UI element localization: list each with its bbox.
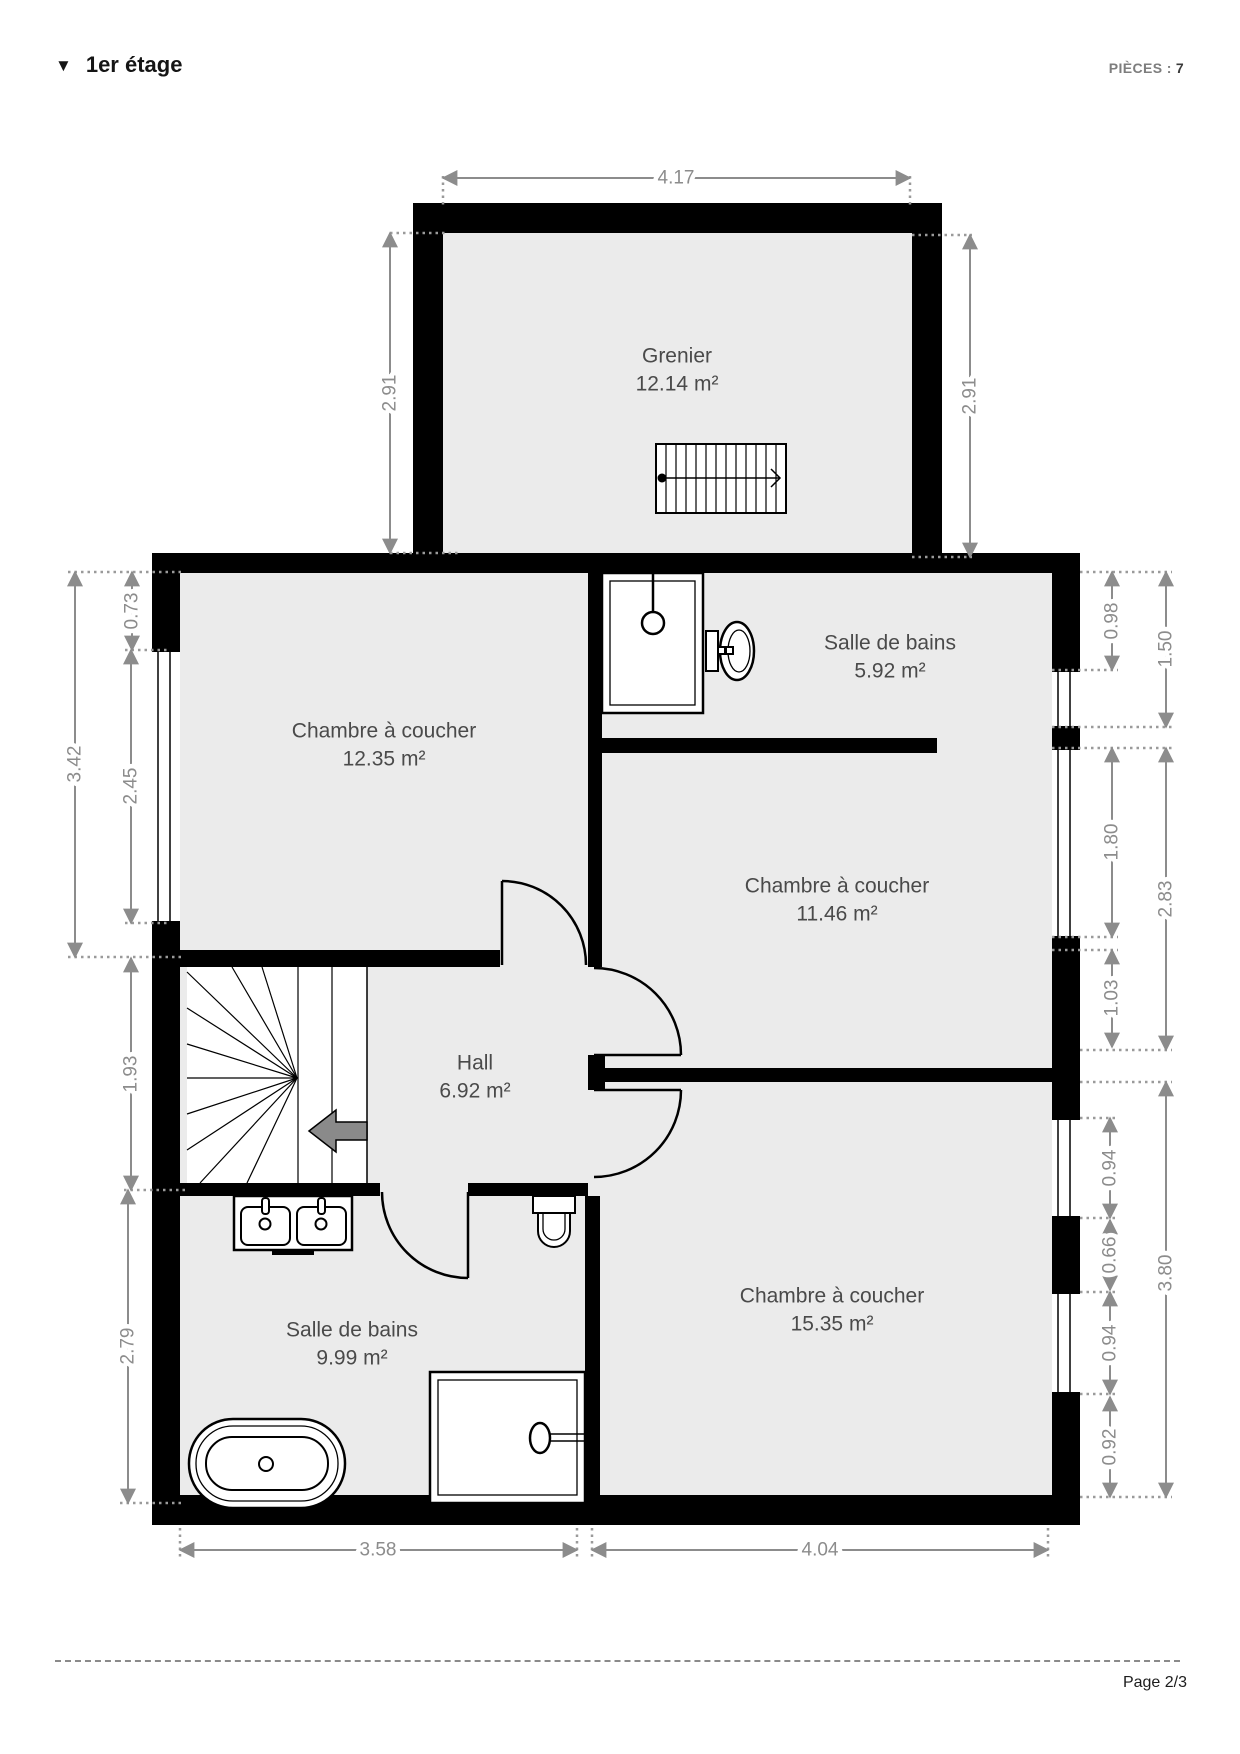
svg-text:2.91: 2.91: [960, 378, 981, 415]
svg-text:0.66: 0.66: [1100, 1237, 1121, 1274]
svg-text:1.03: 1.03: [1102, 980, 1123, 1017]
svg-text:0.92: 0.92: [1100, 1429, 1121, 1466]
svg-text:0.73: 0.73: [122, 593, 143, 630]
toilet-hall-bathroom: [533, 1196, 575, 1247]
shower-bottom-bathroom: [430, 1372, 585, 1503]
wall-grenier-left: [413, 203, 443, 573]
dimension-right-1-03: 1.03: [1102, 950, 1123, 1047]
window-right-3: [1052, 1118, 1080, 1218]
floor-plan-page: ▼ 1er étage PIÈCES :7: [0, 0, 1240, 1754]
room-name-bedroom-middle-right: Chambre à coucher: [745, 875, 929, 898]
wall-main-right-2: [1052, 728, 1080, 748]
dimension-right-3-80: 3.80: [1156, 1082, 1177, 1497]
dimension-right-2-83: 2.83: [1156, 748, 1177, 1050]
shower-head-icon: [642, 612, 664, 634]
svg-text:4.04: 4.04: [802, 1540, 839, 1561]
dimension-right-0-66: 0.66: [1100, 1220, 1121, 1290]
room-name-bathroom-bottom: Salle de bains: [286, 1319, 418, 1342]
page-number: Page 2/3: [1123, 1674, 1187, 1692]
wall-grenier-top: [413, 203, 942, 233]
wall-bathroom-bottom-right: [585, 1196, 600, 1495]
wall-main-right-1: [1052, 573, 1080, 670]
dimension-grenier-width: 4.17: [443, 168, 910, 189]
wall-hall-bottom-right: [468, 1183, 588, 1196]
window-right-4: [1052, 1292, 1080, 1394]
svg-text:1.93: 1.93: [121, 1056, 142, 1093]
dimension-right-0-94-b: 0.94: [1100, 1292, 1121, 1394]
svg-text:3.42: 3.42: [65, 746, 86, 783]
svg-text:2.91: 2.91: [380, 375, 401, 412]
dimension-left-3-42: 3.42: [65, 572, 86, 957]
room-area-hall: 6.92 m²: [439, 1080, 510, 1103]
dimension-bottom-3-58: 3.58: [180, 1540, 577, 1561]
svg-text:0.94: 0.94: [1100, 1149, 1121, 1186]
svg-text:1.50: 1.50: [1156, 631, 1177, 668]
wall-grenier-right: [912, 233, 942, 573]
dimension-left-0-73: 0.73: [122, 572, 143, 650]
room-name-grenier: Grenier: [642, 345, 712, 368]
footer-divider: [55, 1660, 1180, 1662]
room-area-grenier: 12.14 m²: [636, 373, 719, 396]
dimension-left-2-45: 2.45: [121, 650, 142, 923]
bathtub-drain-icon: [259, 1457, 273, 1471]
bathtub: [189, 1419, 345, 1508]
wall-bedroom1-bottom: [180, 950, 500, 967]
window-right-1: [1052, 670, 1080, 728]
dimension-right-0-98: 0.98: [1102, 572, 1123, 670]
svg-text:1.80: 1.80: [1102, 824, 1123, 861]
faucet-icon: [318, 1198, 325, 1214]
room-area-bedroom-bottom-right: 15.35 m²: [791, 1313, 874, 1336]
svg-text:2.83: 2.83: [1156, 881, 1177, 918]
dimension-left-2-79: 2.79: [118, 1190, 139, 1503]
svg-text:3.58: 3.58: [360, 1540, 397, 1561]
svg-text:2.45: 2.45: [121, 768, 142, 805]
window-left: [152, 650, 180, 923]
dimension-right-1-80: 1.80: [1102, 748, 1123, 937]
dimension-right-0-92: 0.92: [1100, 1397, 1121, 1497]
room-name-bedroom-top-left: Chambre à coucher: [292, 720, 476, 743]
wall-main-right-5: [1052, 1394, 1080, 1495]
window-right-2: [1052, 748, 1080, 938]
svg-text:0.98: 0.98: [1102, 603, 1123, 640]
svg-text:4.17: 4.17: [658, 168, 695, 189]
wall-bedroom2-bedroom3-divider: [602, 1068, 1052, 1082]
svg-text:0.94: 0.94: [1100, 1324, 1121, 1361]
stairs-grenier: [656, 444, 786, 513]
wall-bedroom1-right: [588, 573, 602, 967]
stair-walk-line-start-dot: [658, 474, 667, 483]
dimension-grenier-height-left: 2.91: [380, 233, 401, 553]
wall-main-right-3: [1052, 938, 1080, 1118]
dimension-left-1-93: 1.93: [121, 958, 142, 1190]
toilet-top-bathroom: [706, 622, 754, 680]
double-washbasin: [234, 1196, 352, 1255]
room-area-bathroom-bottom: 9.99 m²: [316, 1347, 387, 1370]
dimension-right-1-50: 1.50: [1156, 572, 1177, 727]
dimension-bottom-4-04: 4.04: [592, 1540, 1048, 1561]
room-name-hall: Hall: [457, 1052, 493, 1075]
floor-plan-canvas: Grenier 12.14 m² Chambre à coucher 12.35…: [0, 0, 1240, 1754]
room-area-bathroom-top: 5.92 m²: [854, 660, 925, 683]
room-area-bedroom-middle-right: 11.46 m²: [796, 903, 877, 926]
stairs-winder: [187, 967, 367, 1183]
room-name-bedroom-bottom-right: Chambre à coucher: [740, 1285, 924, 1308]
svg-text:3.80: 3.80: [1156, 1255, 1177, 1292]
wall-main-left-upper: [152, 573, 180, 650]
wall-main-left-lower: [152, 923, 180, 1495]
dimension-right-0-94-a: 0.94: [1100, 1118, 1121, 1218]
room-name-bathroom-top: Salle de bains: [824, 632, 956, 655]
faucet-icon: [262, 1198, 269, 1214]
wall-hall-bottom-left: [180, 1183, 380, 1196]
dimension-grenier-height-right: 2.91: [960, 235, 981, 557]
room-area-bedroom-top-left: 12.35 m²: [343, 748, 426, 771]
wall-main-top: [152, 553, 1080, 573]
wall-main-right-4: [1052, 1218, 1080, 1292]
svg-text:2.79: 2.79: [118, 1328, 139, 1365]
wall-bathroom-top-bottom: [602, 738, 937, 753]
shower-top-bathroom: [602, 573, 703, 713]
shower-faucet-icon: [530, 1423, 550, 1453]
